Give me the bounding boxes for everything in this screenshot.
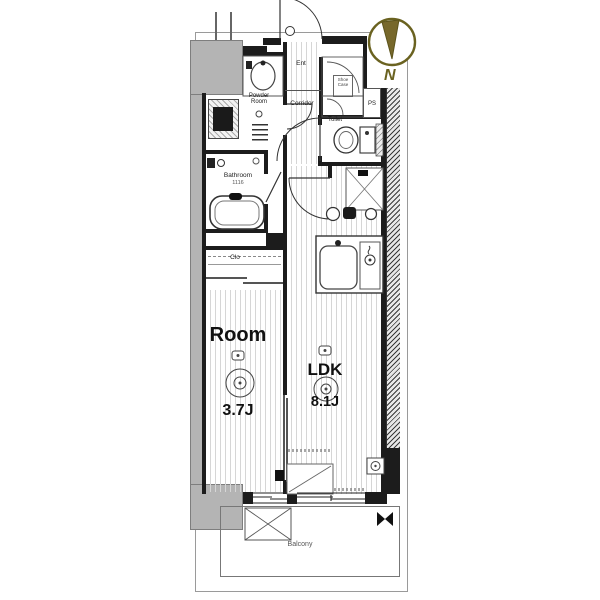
room-window [253, 493, 287, 503]
ceiling-light-room [226, 369, 254, 397]
floor-outlet-box [367, 458, 384, 474]
fire-detector-ldk [319, 346, 331, 355]
ldk-label: LDK [295, 361, 355, 379]
entrance-door-arc [280, 0, 322, 39]
room-size-label: 3.7J [201, 402, 275, 419]
fire-detector-room [232, 351, 244, 360]
shoe-closet-door-arcs [322, 57, 363, 117]
room-label: Room [201, 325, 275, 347]
corridor-label: Corridor [281, 100, 323, 107]
bathroom-size-label: 1116 [209, 181, 267, 187]
floor-plan: Shoe Case [0, 0, 600, 600]
powder-fixture-circle [256, 111, 262, 117]
refrigerator-space [346, 168, 383, 210]
ent-label: Ent [283, 60, 319, 67]
vanity-basin [243, 56, 283, 96]
ac-outdoor-unit-space [245, 508, 291, 540]
bathtub [210, 193, 264, 229]
kitchen-burners [327, 207, 377, 221]
toilet-label: Toilet [322, 117, 348, 123]
ldk-counter [275, 464, 333, 494]
toilet-door-arc [277, 118, 320, 161]
bath-faucet [207, 158, 259, 168]
balcony-label: Balcony [270, 541, 330, 549]
closet-label: Clo [221, 254, 249, 261]
bathroom-door-leaf [266, 172, 281, 202]
ldk-size-label: 8.1J [295, 395, 355, 411]
fixtures-overlay: N [0, 0, 600, 600]
towel-rack [252, 124, 268, 141]
ps-label: PS [358, 101, 386, 107]
kitchen-counter [316, 236, 383, 293]
hose-bib-symbol [377, 512, 393, 526]
powder-room-door-arc [287, 104, 312, 129]
bathroom-label: Bathroom [209, 172, 267, 179]
north-label: N [384, 67, 396, 84]
north-compass: N [369, 19, 415, 84]
powder-room-label: Powder Room [240, 93, 278, 106]
toilet-fixture [334, 124, 383, 156]
ldk-door-arc [289, 178, 330, 219]
